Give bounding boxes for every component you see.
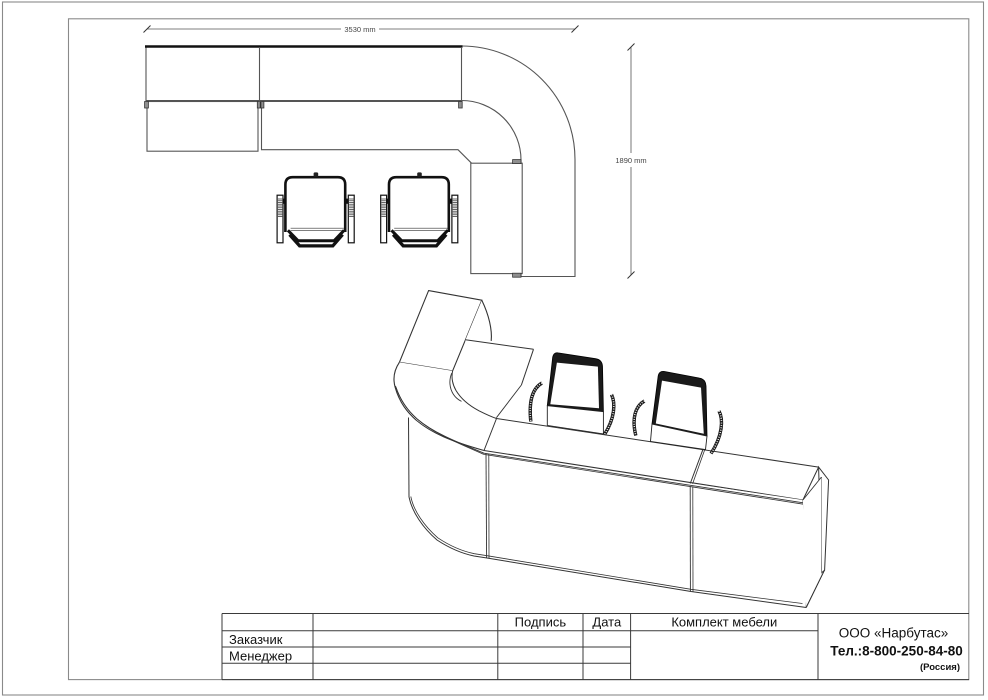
svg-text:3530 mm: 3530 mm <box>344 25 375 34</box>
svg-text:1890 mm: 1890 mm <box>615 156 646 165</box>
svg-text:Тел.:8-800-250-84-80: Тел.:8-800-250-84-80 <box>830 644 962 659</box>
svg-text:Менеджер: Менеджер <box>229 648 292 663</box>
svg-text:Подпись: Подпись <box>515 615 567 630</box>
svg-text:Дата: Дата <box>592 615 622 630</box>
svg-text:Заказчик: Заказчик <box>229 632 283 647</box>
svg-text:(Россия): (Россия) <box>920 662 960 673</box>
svg-text:Комплект мебели: Комплект мебели <box>671 615 777 630</box>
svg-text:ООО «Нарбутас»: ООО «Нарбутас» <box>839 626 949 641</box>
